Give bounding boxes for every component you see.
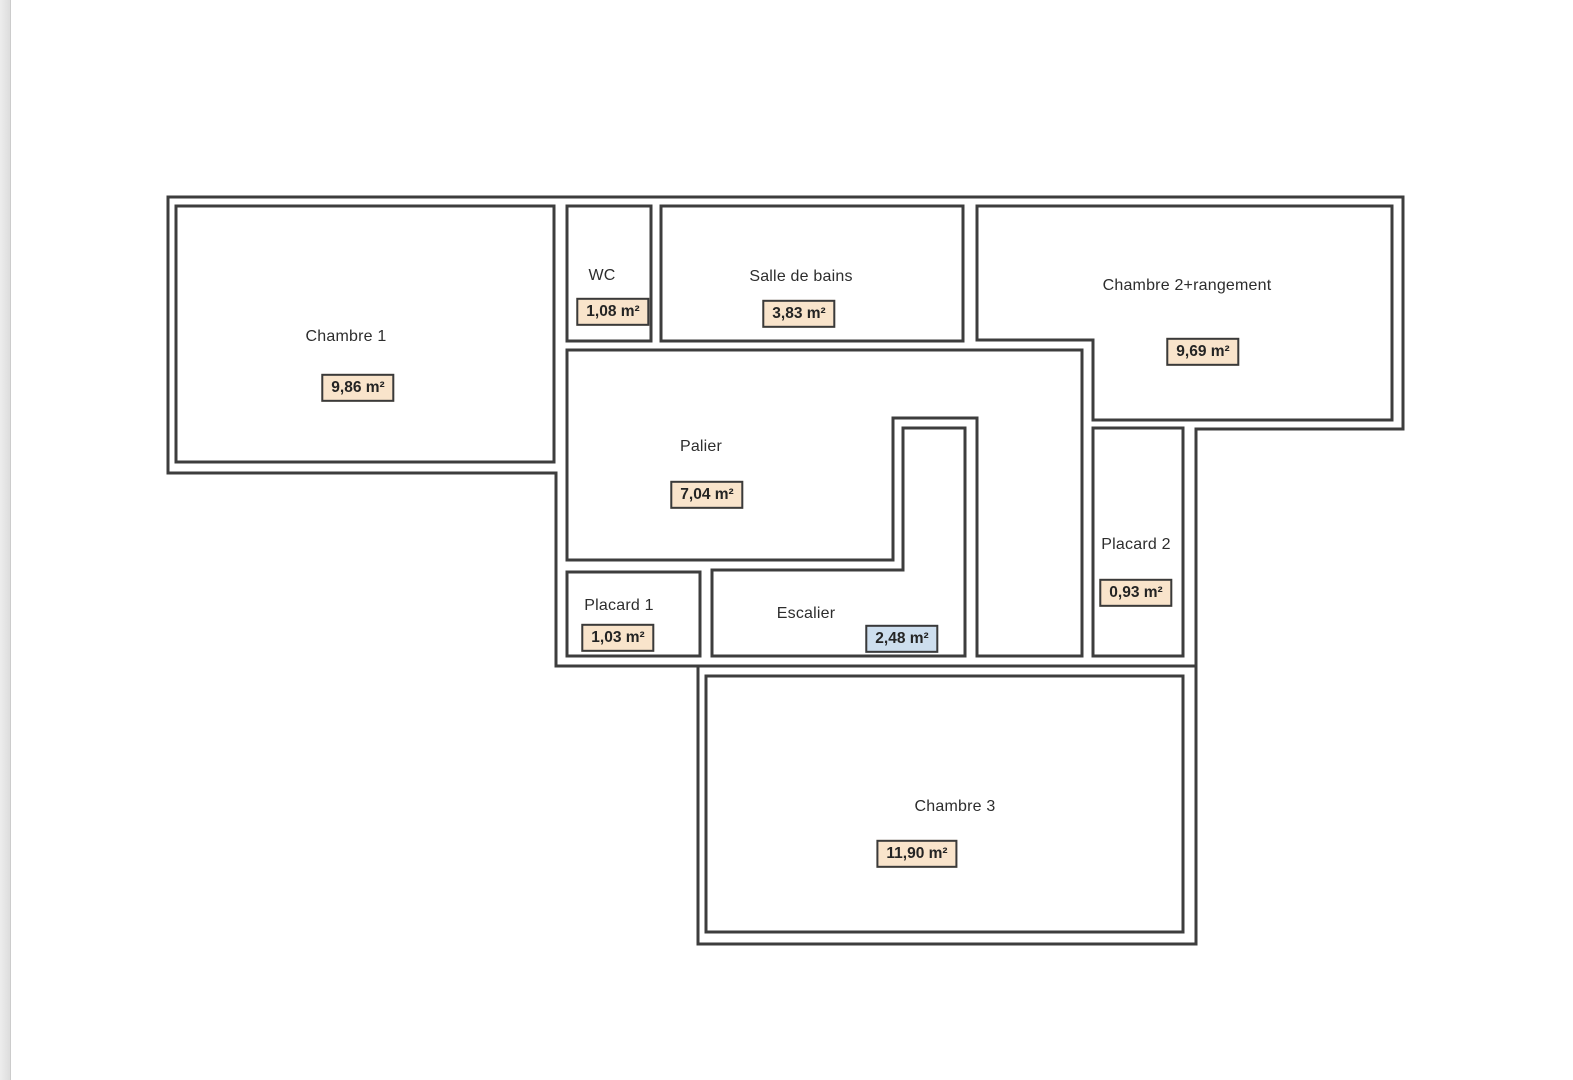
room-shape-chambre-1 [176,206,554,462]
room-shape-wc [567,206,651,341]
room-shape-salle-de-bains [661,206,963,341]
room-shape-placard-1 [567,572,700,656]
floor-plan-svg [0,0,1573,1080]
page: Chambre 1 9,86 m² WC 1,08 m² Salle de ba… [0,0,1573,1080]
room-shape-placard-2 [1093,428,1183,656]
room-shape-chambre-3 [706,676,1183,932]
